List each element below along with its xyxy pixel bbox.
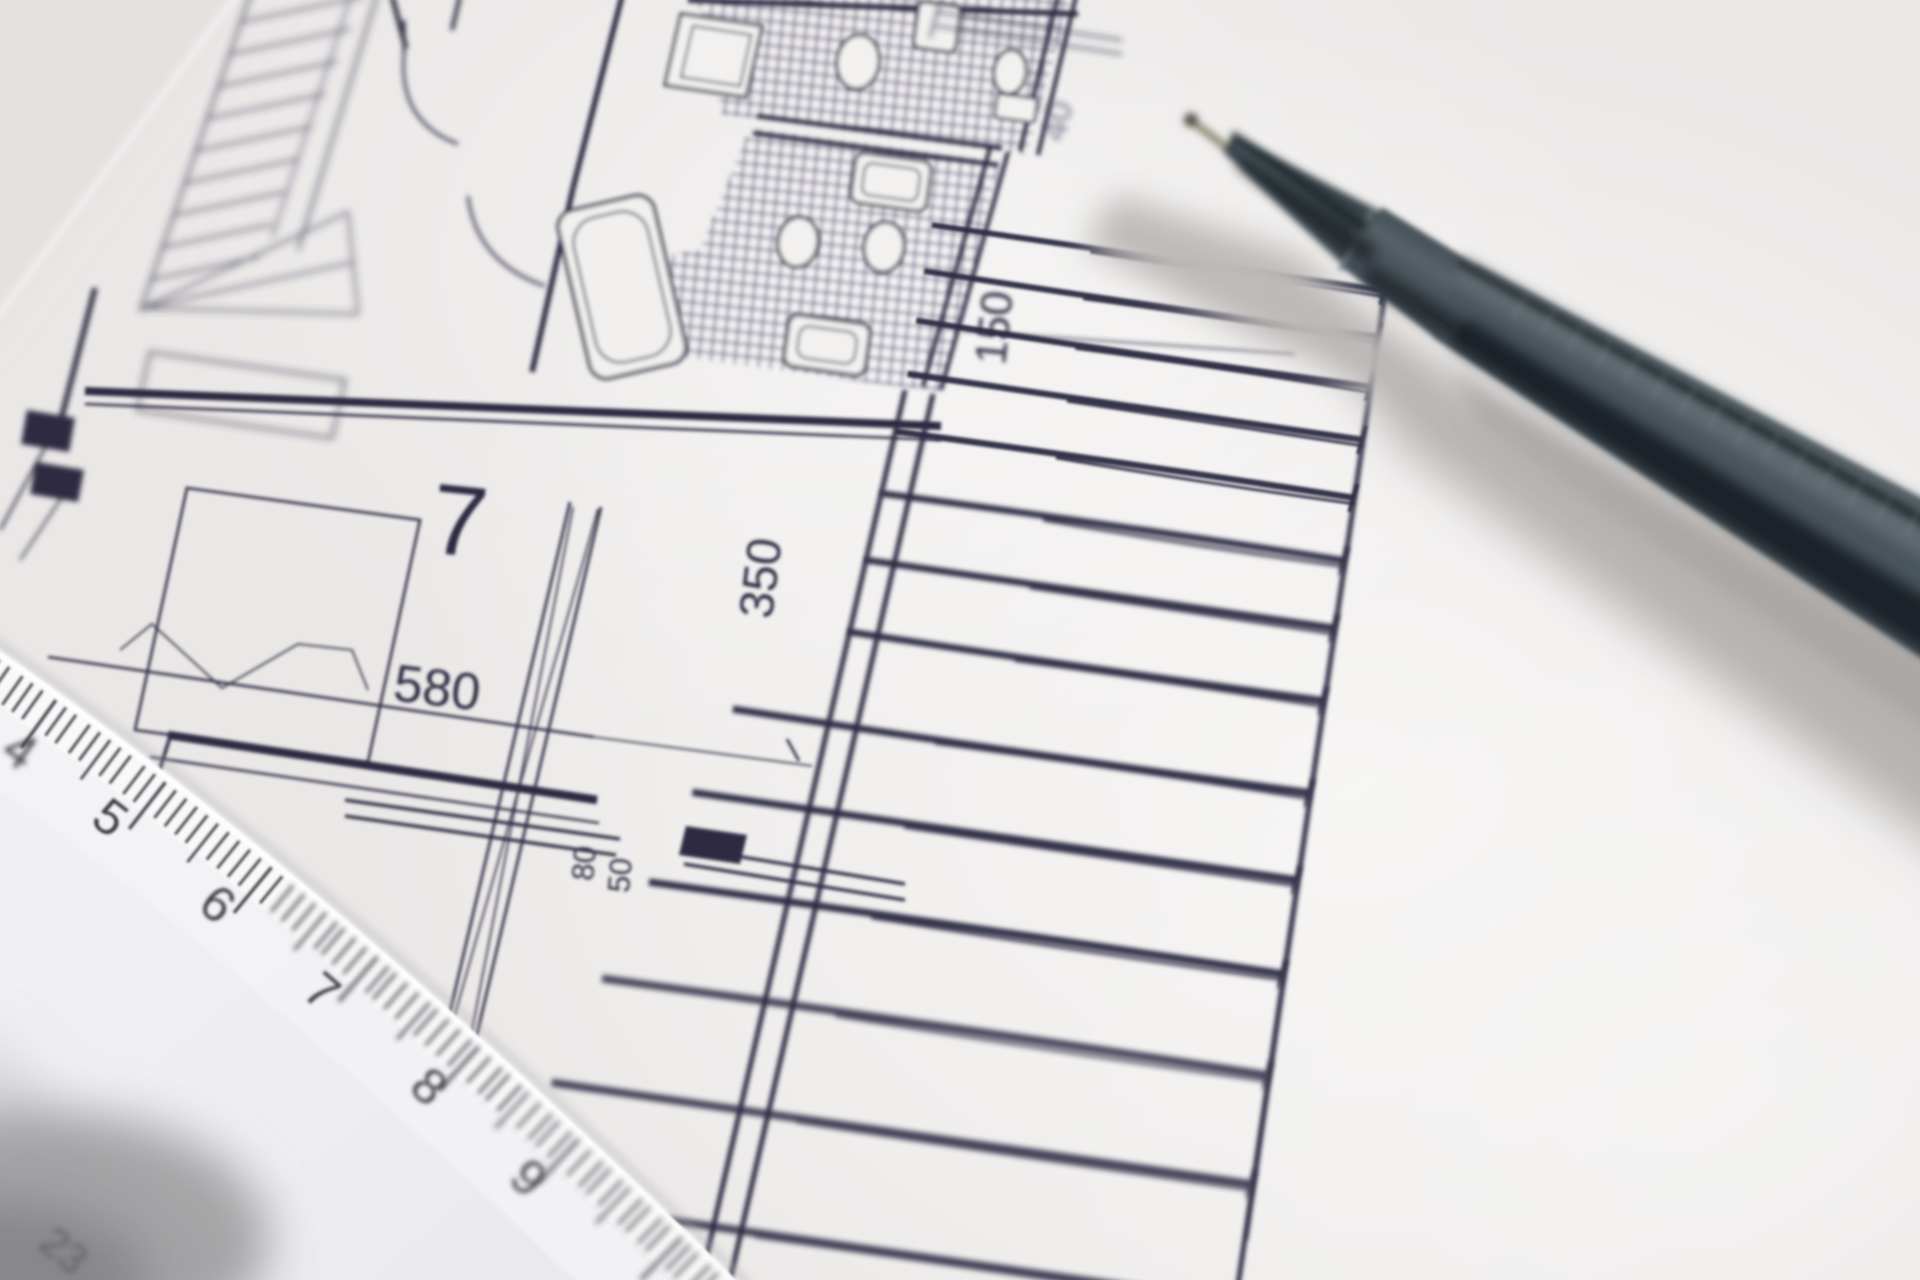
- svg-text:580: 580: [391, 654, 484, 722]
- svg-text:150: 150: [966, 289, 1022, 367]
- svg-text:50: 50: [601, 857, 639, 894]
- svg-text:350: 350: [730, 535, 792, 621]
- svg-text:40: 40: [1032, 97, 1080, 145]
- svg-text:7: 7: [426, 462, 493, 579]
- svg-text:80: 80: [565, 845, 603, 882]
